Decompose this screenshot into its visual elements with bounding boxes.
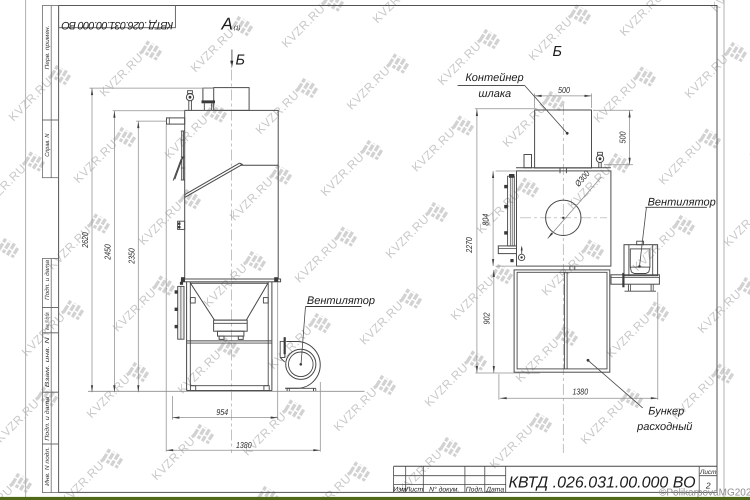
- svg-text:Справ. N: Справ. N: [44, 133, 51, 157]
- svg-text:КВТД .026.031.00.000 ВО: КВТД .026.031.00.000 ВО: [61, 19, 174, 31]
- svg-text:(1): (1): [234, 25, 241, 32]
- svg-text:Изм: Изм: [393, 486, 406, 493]
- svg-text:1380: 1380: [236, 440, 252, 450]
- svg-text:Вентилятор: Вентилятор: [307, 295, 375, 307]
- svg-text:Б: Б: [553, 44, 562, 60]
- svg-text:расходный: расходный: [636, 421, 692, 433]
- svg-text:Бункер: Бункер: [648, 406, 684, 418]
- svg-text:Взам. инв. N: Взам. инв. N: [44, 336, 51, 387]
- svg-text:2270: 2270: [464, 237, 474, 254]
- svg-text:Подп. и дата: Подп. и дата: [44, 396, 51, 441]
- svg-text:Инв. N дубл.: Инв. N дубл.: [44, 312, 51, 331]
- svg-text:шлака: шлака: [478, 88, 511, 100]
- svg-text:902: 902: [481, 312, 491, 324]
- svg-text:500: 500: [617, 131, 627, 143]
- svg-text:Подп.: Подп.: [466, 486, 484, 493]
- svg-text:Вентилятор: Вентилятор: [648, 196, 716, 208]
- svg-text:Контейнер: Контейнер: [465, 72, 523, 84]
- svg-text:1380: 1380: [573, 386, 589, 396]
- svg-text:Лист: Лист: [405, 486, 424, 493]
- svg-text:2350: 2350: [126, 248, 136, 265]
- svg-text:500: 500: [558, 85, 570, 95]
- svg-text:Б: Б: [236, 53, 245, 69]
- svg-text:N° докум.: N° докум.: [429, 486, 459, 493]
- svg-text:954: 954: [216, 407, 228, 417]
- svg-text:Дата: Дата: [485, 486, 504, 493]
- svg-text:804: 804: [480, 214, 490, 226]
- svg-text:Подп. и дата: Подп. и дата: [44, 259, 51, 300]
- svg-text:2450: 2450: [103, 244, 113, 261]
- svg-text:Перв. примен.: Перв. примен.: [44, 26, 51, 70]
- svg-text:А: А: [221, 15, 233, 34]
- svg-text:Лист: Лист: [699, 469, 717, 476]
- svg-text:Инв. N подл.: Инв. N подл.: [44, 447, 51, 486]
- svg-text:2620: 2620: [80, 232, 90, 249]
